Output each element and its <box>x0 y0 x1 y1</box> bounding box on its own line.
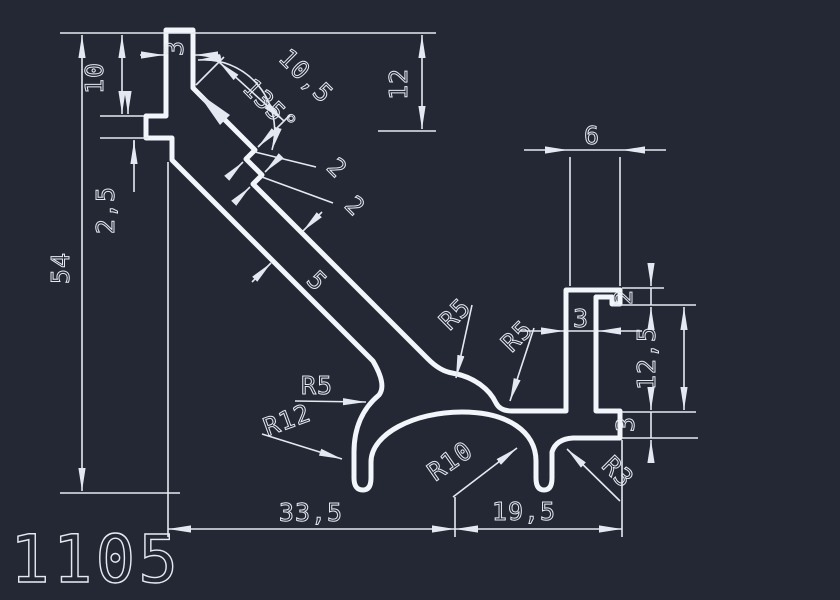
dim-channel-height: 12,5 <box>632 326 661 390</box>
dim-step-first: 2 <box>321 152 353 184</box>
dim-channel-width: 6 <box>584 121 600 150</box>
dim-base-height: 3 <box>611 416 640 432</box>
cad-viewport: 3 10 2,5 54 135° 10,5 12 2 2 5 R5 R5 R5 … <box>0 0 840 600</box>
dim-bar-width: 3 <box>160 40 189 56</box>
dim-top-height: 12 <box>384 68 413 100</box>
dim-width-left: 33,5 <box>279 498 343 527</box>
dim-channel-wall: 3 <box>573 304 589 333</box>
dim-fillet-r10: R10 <box>422 435 478 486</box>
dim-fillet-r5-left: R5 <box>301 371 333 400</box>
dim-lip-height: 2 <box>609 289 638 305</box>
dim-top-offset: 10 <box>80 62 109 94</box>
dim-fillet-r5-arm: R5 <box>433 292 476 335</box>
dim-fillet-r5-web: R5 <box>495 314 538 357</box>
dimension-arrow-stubs <box>128 55 666 462</box>
dimension-lines <box>82 35 684 529</box>
profile-outline <box>146 30 620 490</box>
profile-number: 1105 <box>10 521 181 598</box>
cad-canvas[interactable]: 3 10 2,5 54 135° 10,5 12 2 2 5 R5 R5 R5 … <box>0 0 840 600</box>
dim-step-second: 2 <box>339 190 371 222</box>
extension-lines <box>60 33 698 537</box>
dim-width-right: 19,5 <box>492 497 556 526</box>
dim-notch-height: 2,5 <box>91 186 120 234</box>
dim-fillet-r3: R3 <box>596 450 639 493</box>
dim-fillet-r12: R12 <box>260 398 315 442</box>
dim-overall-height: 54 <box>46 252 75 284</box>
